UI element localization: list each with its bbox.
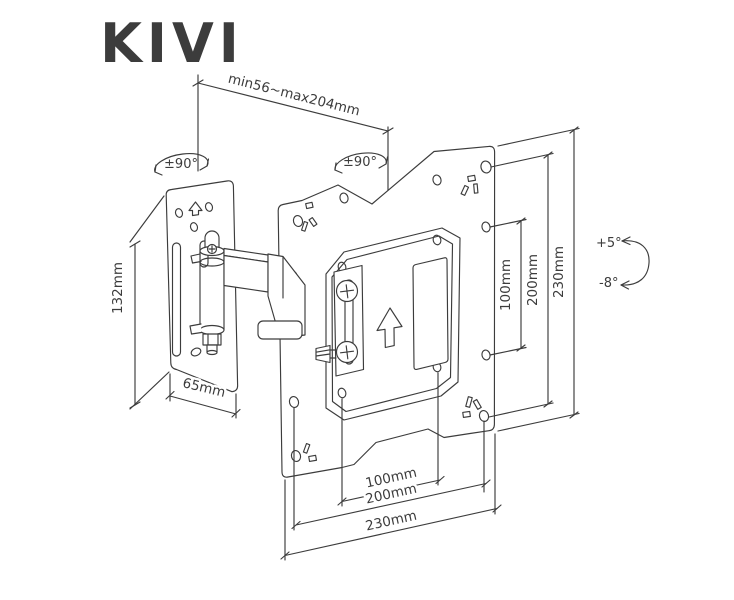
dimension-vesa-vertical-100: 100mm: [490, 218, 526, 355]
mount-diagram: KIVI min56~max204mm ±90° ±90°: [0, 0, 734, 600]
kivi-logo: KIVI: [100, 12, 244, 75]
swivel-range-right: ±90°: [335, 153, 388, 173]
plate-width-label: 230mm: [364, 508, 418, 535]
swivel-left-label: ±90°: [164, 157, 198, 172]
vesa-vertical-200-label: 200mm: [525, 254, 541, 306]
tilt-range: +5° -8°: [596, 236, 649, 291]
line-art: min56~max204mm ±90° ±90°: [110, 71, 649, 560]
vesa-vertical-100-label: 100mm: [498, 259, 514, 311]
plate-height-label: 230mm: [551, 246, 567, 298]
dimension-wall-plate-height: 132mm: [110, 196, 169, 409]
safety-latch: [258, 321, 302, 339]
articulating-arm: [224, 249, 268, 293]
page: KIVI min56~max204mm ±90° ±90°: [0, 0, 734, 600]
wall-plate-height-label: 132mm: [110, 262, 126, 314]
swivel-right-label: ±90°: [343, 155, 377, 170]
swivel-range-left: ±90°: [155, 154, 209, 175]
tilt-up-label: +5°: [596, 236, 622, 251]
tilt-down-label: -8°: [599, 276, 618, 291]
